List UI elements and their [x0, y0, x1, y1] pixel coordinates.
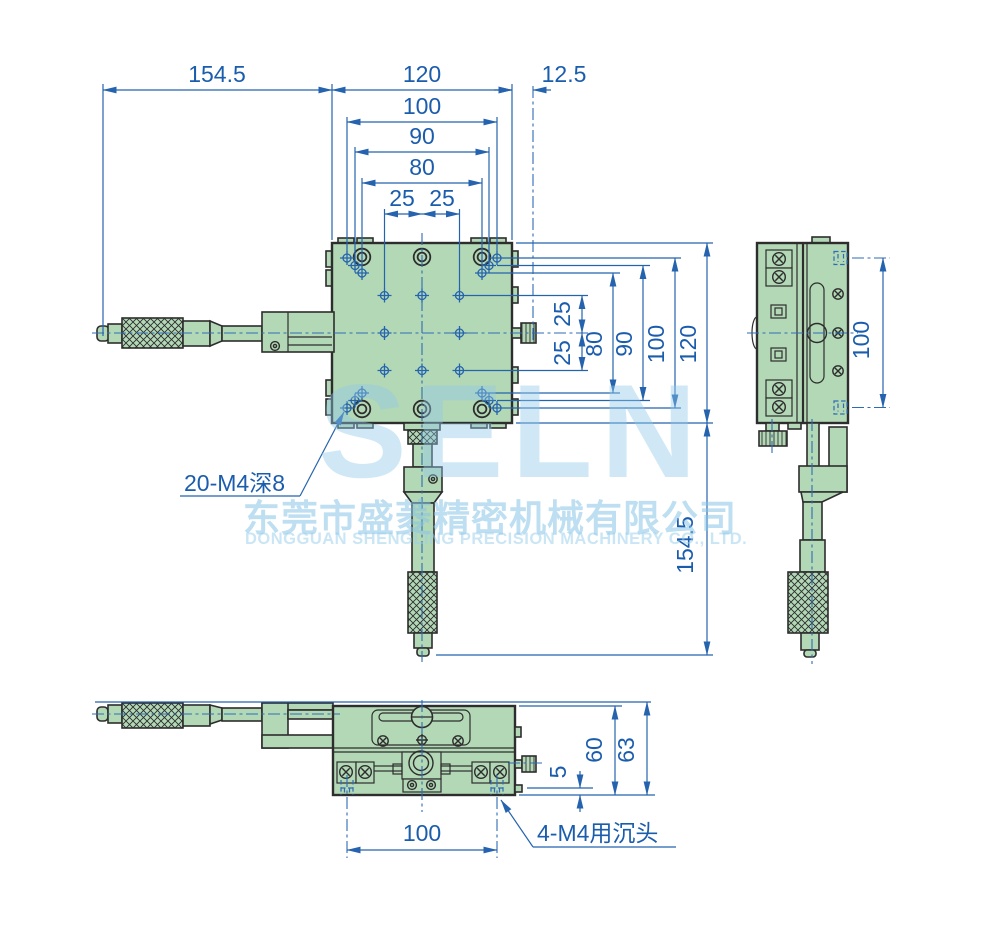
dim-grid-25-bottom: 25: [549, 340, 575, 366]
bottom-top-plate: [372, 707, 470, 747]
dim-micrometer-length: 154.5: [672, 516, 698, 574]
dim-overall-left: 154.5: [188, 61, 246, 87]
bottom-left-micrometer: [97, 703, 334, 748]
dim-counterbore-depth: 5: [545, 766, 571, 779]
callout-base-mount-holes-label: 4-M4用沉头: [537, 820, 658, 846]
dim-grid-25-right: 25: [429, 185, 455, 211]
side-vertical-micrometer: [788, 423, 847, 657]
dim-holes-90: 90: [409, 123, 435, 149]
callout-base-mount-holes: 4-M4用沉头: [501, 800, 676, 847]
dim-holes-100: 100: [403, 93, 441, 119]
front-bottom-micrometer: [404, 423, 442, 656]
technical-drawing-page: 154.5 120 12.5 100 90 80 25 25 25 25 80 …: [0, 0, 1000, 926]
dim-total-height: 63: [613, 737, 639, 763]
dim-stage-width: 120: [403, 61, 441, 87]
dim-body-height: 60: [581, 737, 607, 763]
dim-base-holes-100: 100: [403, 820, 441, 846]
dim-rows-100: 100: [643, 325, 669, 363]
side-view: [747, 237, 858, 664]
side-lock-knob: [759, 423, 801, 446]
front-view: [92, 86, 588, 662]
dim-holes-80: 80: [409, 154, 435, 180]
dim-grid-25-left: 25: [389, 185, 415, 211]
bottom-view: [92, 700, 545, 858]
dimensions-side: 100: [848, 258, 890, 408]
dim-knob-offset: 12.5: [542, 61, 587, 87]
callout-top-plate-holes: 20-M4深8: [180, 412, 344, 496]
dim-rows-90: 90: [611, 331, 637, 357]
dim-rows-80: 80: [581, 331, 607, 357]
dim-grid-25-top: 25: [549, 301, 575, 327]
drawing-canvas: 154.5 120 12.5 100 90 80 25 25 25 25 80 …: [0, 0, 1000, 926]
callout-top-plate-holes-label: 20-M4深8: [184, 470, 285, 496]
bottom-right-knob: [515, 727, 536, 792]
front-left-micrometer: [97, 312, 334, 352]
dim-side-holes-100: 100: [848, 321, 874, 359]
dim-stage-height: 120: [675, 325, 701, 363]
